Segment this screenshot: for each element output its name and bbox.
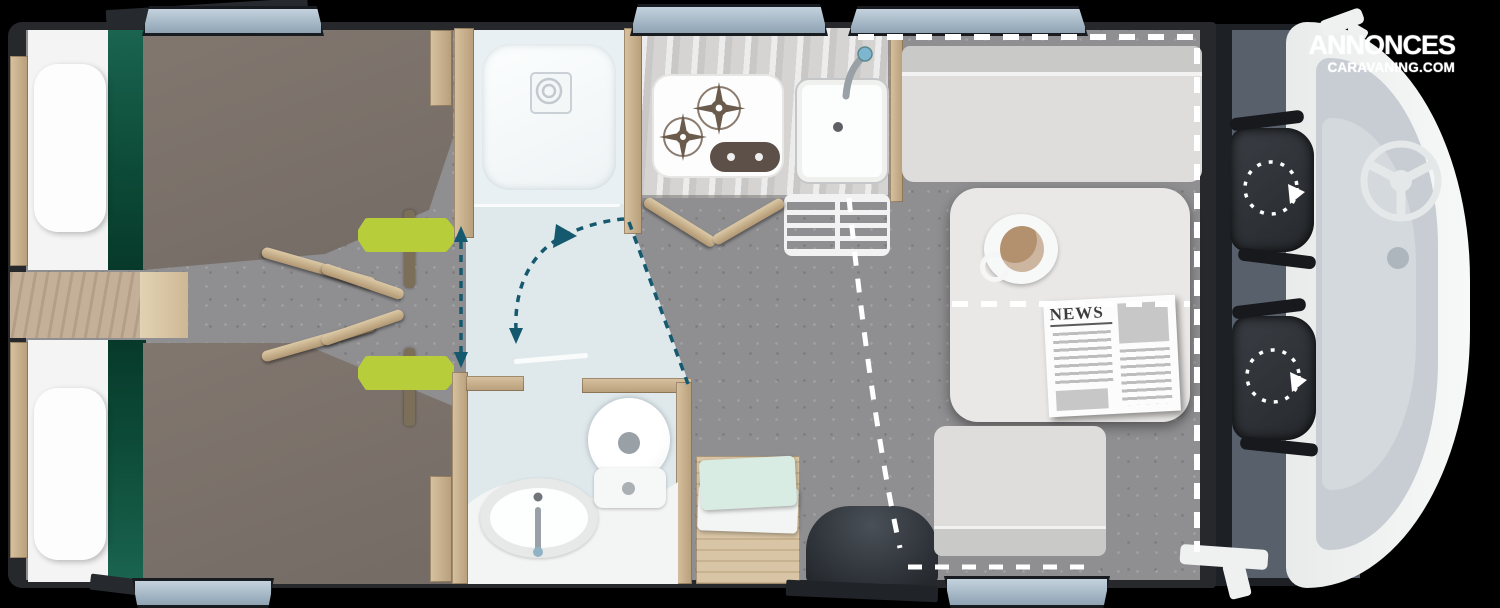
- toilet-button: [622, 482, 635, 495]
- wood-wardrobe: [430, 30, 452, 106]
- washbasin-bowl: [490, 488, 588, 548]
- wood-wall: [10, 342, 28, 558]
- newspaper-photo: [1117, 301, 1169, 344]
- bed-walkway-carpet: [10, 272, 140, 338]
- newspaper-column: [1120, 347, 1173, 406]
- brand-line2: CARAVANING.COM: [1295, 61, 1455, 75]
- shower-wall: [454, 28, 474, 238]
- bed-walkway-step: [140, 272, 188, 338]
- dinette-bench-top: [902, 76, 1202, 182]
- bathroom-wall: [452, 372, 468, 584]
- washbasin: [480, 478, 598, 558]
- shower-drain: [530, 72, 572, 114]
- heater-grate: [784, 194, 890, 256]
- bathroom-wall: [466, 376, 524, 391]
- sink-drain: [833, 122, 843, 132]
- newspaper-photo: [1056, 388, 1109, 411]
- window: [848, 6, 1088, 36]
- bed-top-pillow: [34, 64, 106, 232]
- brand-line1: ANNONCES: [1295, 32, 1455, 59]
- cab-seat-passenger: [1232, 316, 1316, 440]
- dinette-bench-bottom: [934, 426, 1106, 528]
- window: [630, 4, 828, 36]
- newspaper-column: [1053, 330, 1114, 387]
- window: [142, 6, 324, 36]
- kitchen-sink: [797, 80, 887, 182]
- grab-handle: [358, 218, 454, 252]
- cab-seat-driver: [1230, 128, 1314, 252]
- bed-top-green-runner: [108, 30, 146, 270]
- bathroom-wall: [676, 382, 692, 584]
- grab-handle: [358, 356, 454, 390]
- toilet-flush: [618, 432, 640, 454]
- wood-wall: [10, 56, 28, 266]
- bed-bottom-pillow: [34, 388, 106, 560]
- bed-bottom-green-runner: [108, 340, 146, 582]
- wood-wardrobe: [430, 476, 452, 582]
- folded-linen: [699, 456, 797, 511]
- coffee-cup: [1000, 226, 1044, 272]
- window: [132, 578, 274, 608]
- newspaper: NEWS: [1043, 295, 1181, 418]
- newspaper-title: NEWS: [1049, 302, 1112, 327]
- shower-tray: [482, 44, 616, 190]
- bench-backrest: [934, 526, 1106, 556]
- shower-wall: [624, 28, 642, 234]
- floorplan-stage: NEWS: [0, 0, 1500, 608]
- entry-door-step: [806, 506, 938, 584]
- hob-controls: [710, 142, 780, 172]
- bench-backrest: [902, 46, 1202, 74]
- window: [944, 576, 1110, 608]
- brand-logo: ANNONCES CARAVANING.COM: [1295, 32, 1455, 75]
